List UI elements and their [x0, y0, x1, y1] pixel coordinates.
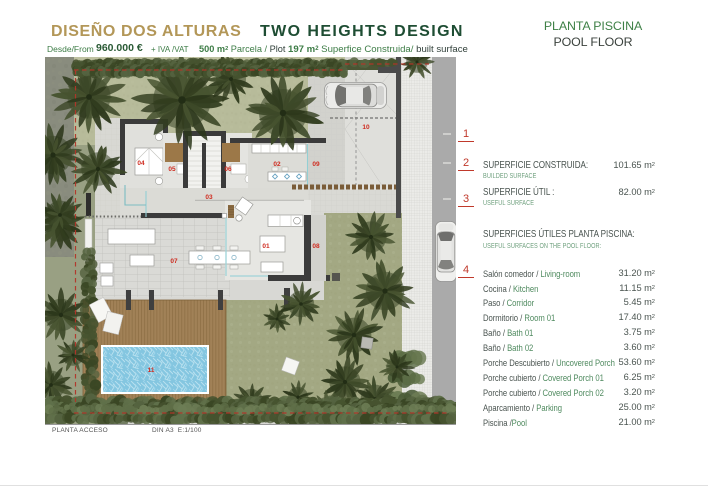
svg-text:07: 07	[170, 258, 178, 265]
svg-text:02: 02	[273, 161, 281, 168]
svg-text:08: 08	[312, 243, 320, 250]
svg-text:04: 04	[137, 160, 145, 167]
svg-text:11: 11	[148, 367, 155, 374]
svg-text:10: 10	[362, 124, 370, 131]
svg-text:05: 05	[168, 166, 176, 173]
svg-text:06: 06	[224, 166, 232, 173]
svg-text:03: 03	[205, 194, 213, 201]
svg-text:09: 09	[312, 161, 320, 168]
svg-text:01: 01	[262, 243, 270, 250]
